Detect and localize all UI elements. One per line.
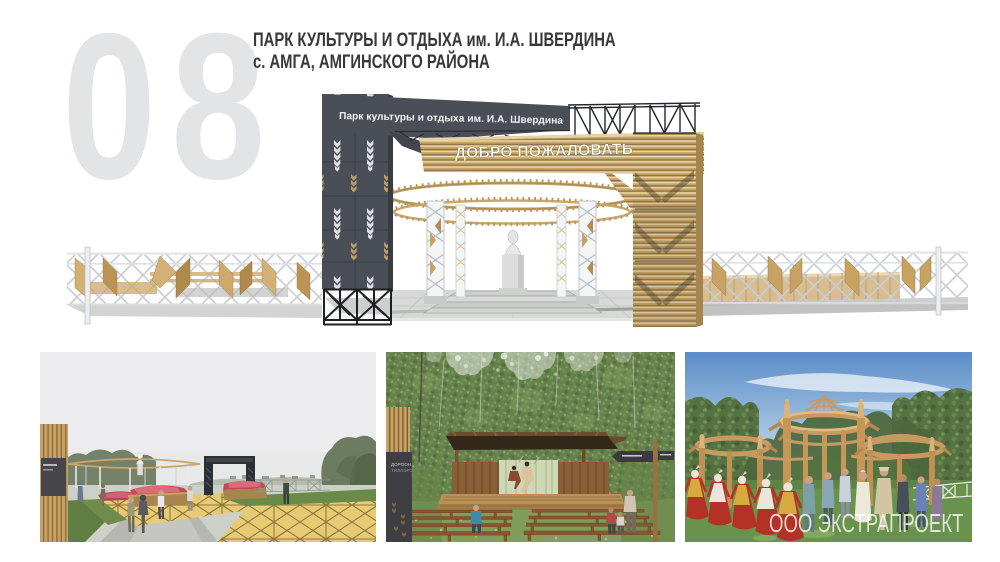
svg-text:ДОРООН: ДОРООН <box>391 462 411 467</box>
svg-text:ТИЛЛЭРЭ: ТИЛЛЭРЭ <box>391 468 414 473</box>
